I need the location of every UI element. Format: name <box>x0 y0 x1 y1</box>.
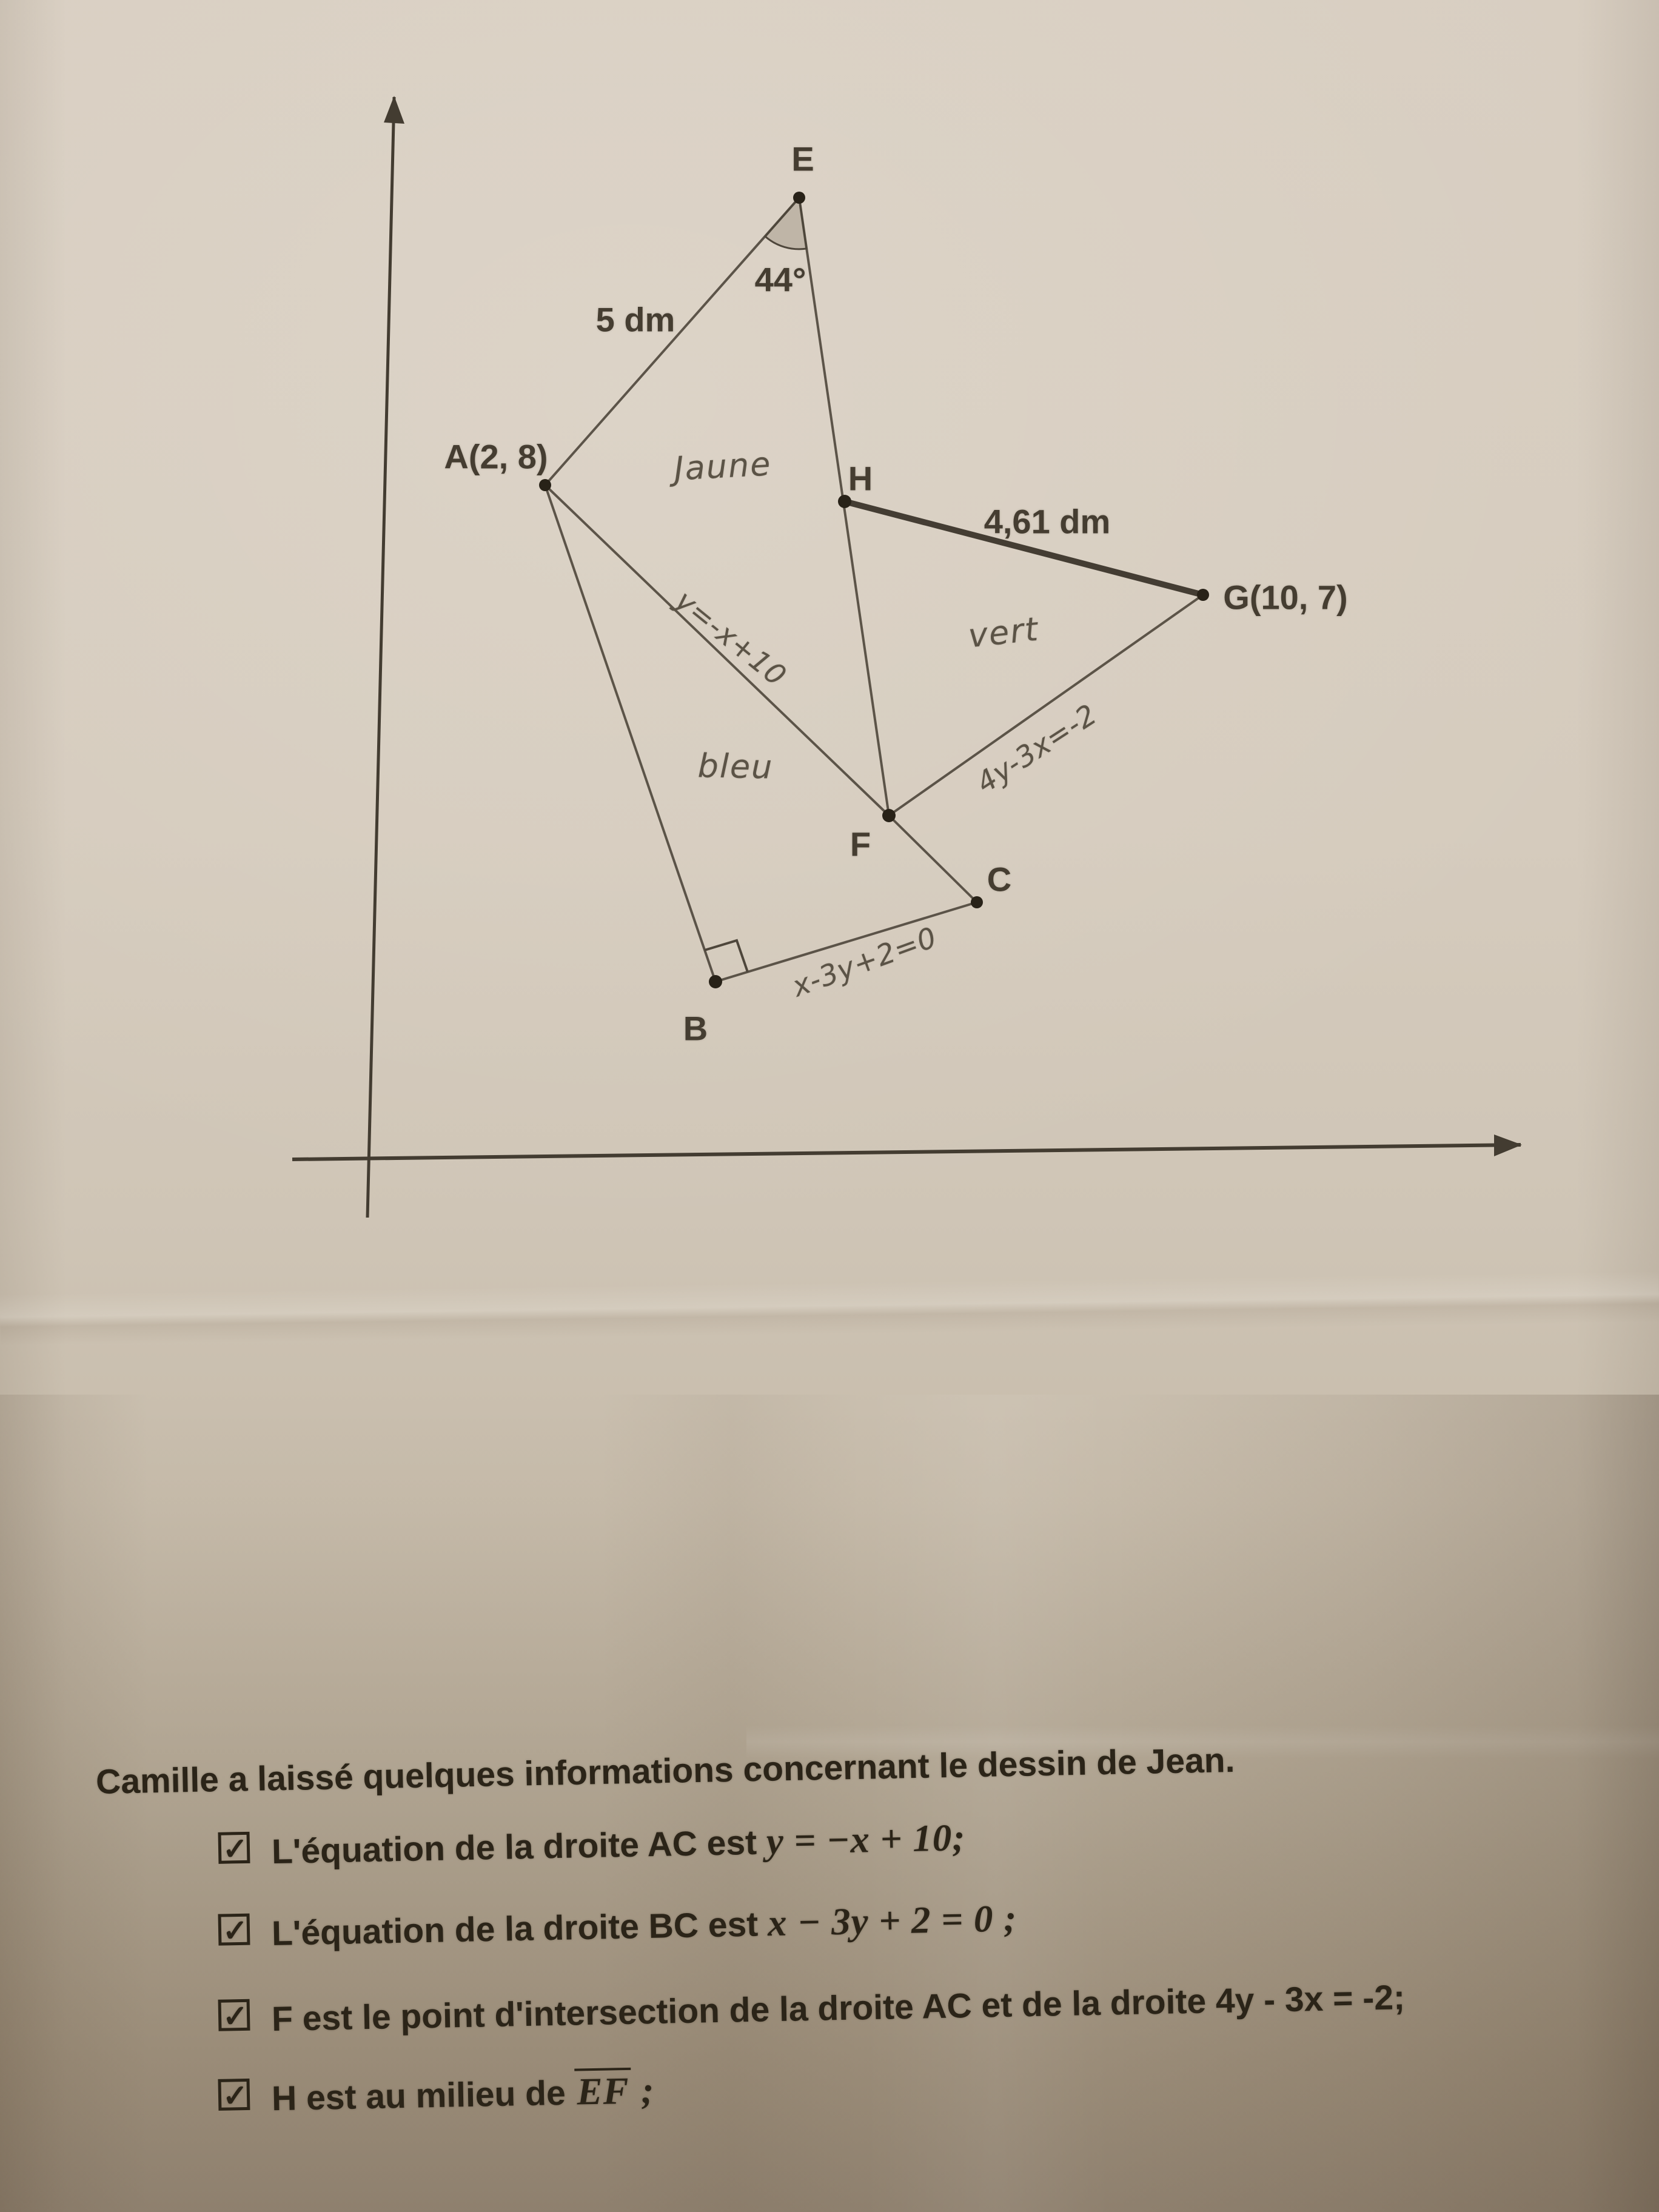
handwritten-region-jaune: Jaune <box>673 444 773 488</box>
note-item-tail: ; <box>631 2069 655 2112</box>
x-axis-arrow-icon <box>1494 1134 1522 1156</box>
note-item-tail: ; <box>1393 1978 1405 2017</box>
checkbox-checked-icon: ✓ <box>218 1832 250 1864</box>
note-item-math: y = −x + 10 <box>766 1817 953 1863</box>
point-label-A: A(2, 8) <box>444 437 548 477</box>
note-item-tail: ; <box>993 1897 1017 1940</box>
note-item-tail: ; <box>952 1816 966 1858</box>
point-dot-C <box>971 896 983 908</box>
angle-label-E: 44° <box>755 260 806 300</box>
point-label-G: G(10, 7) <box>1223 578 1347 617</box>
segment-AE <box>545 198 799 485</box>
checkbox-checked-icon: ✓ <box>218 2079 250 2111</box>
geometry-figure <box>0 0 1659 2212</box>
point-dot-G <box>1197 589 1209 601</box>
point-label-B: B <box>683 1009 708 1048</box>
y-axis-arrow-icon <box>384 96 404 124</box>
y-axis <box>367 97 394 1218</box>
point-dot-F <box>882 809 896 822</box>
handwritten-region-bleu: bleu <box>697 746 774 786</box>
note-item-text: H est au milieu de <box>271 2074 575 2119</box>
segment-AB <box>545 485 716 982</box>
segment-GF <box>889 595 1203 816</box>
note-item-text: L'équation de la droite AC est <box>272 1823 767 1871</box>
point-dot-B <box>709 975 722 988</box>
length-label-AE: 5 dm <box>596 300 675 340</box>
note-item-math: 4y - 3x = -2 <box>1215 1979 1393 2021</box>
length-label-HG: 4,61 dm <box>984 502 1111 541</box>
point-dot-E <box>793 192 805 204</box>
handwritten-region-vert: vert <box>967 610 1041 655</box>
note-item-math: x − 3y + 2 = 0 <box>767 1897 994 1944</box>
point-dot-A <box>539 479 551 491</box>
point-label-C: C <box>987 860 1011 899</box>
note-item: ✓H est au milieu de EF ; <box>218 2067 655 2121</box>
point-label-H: H <box>848 459 873 498</box>
checkbox-checked-icon: ✓ <box>218 1914 250 1946</box>
point-label-E: E <box>791 139 814 179</box>
checkbox-checked-icon: ✓ <box>218 1999 250 2031</box>
segment-FC <box>889 816 977 902</box>
note-item-math-overline: EF <box>575 2068 631 2111</box>
photographed-worksheet: E A(2, 8) H G(10, 7) F C B 5 dm 44° 4,61… <box>0 0 1659 2212</box>
point-label-F: F <box>850 825 871 864</box>
x-axis <box>292 1145 1521 1159</box>
note-item-text: L'équation de la droite BC est <box>272 1905 768 1953</box>
